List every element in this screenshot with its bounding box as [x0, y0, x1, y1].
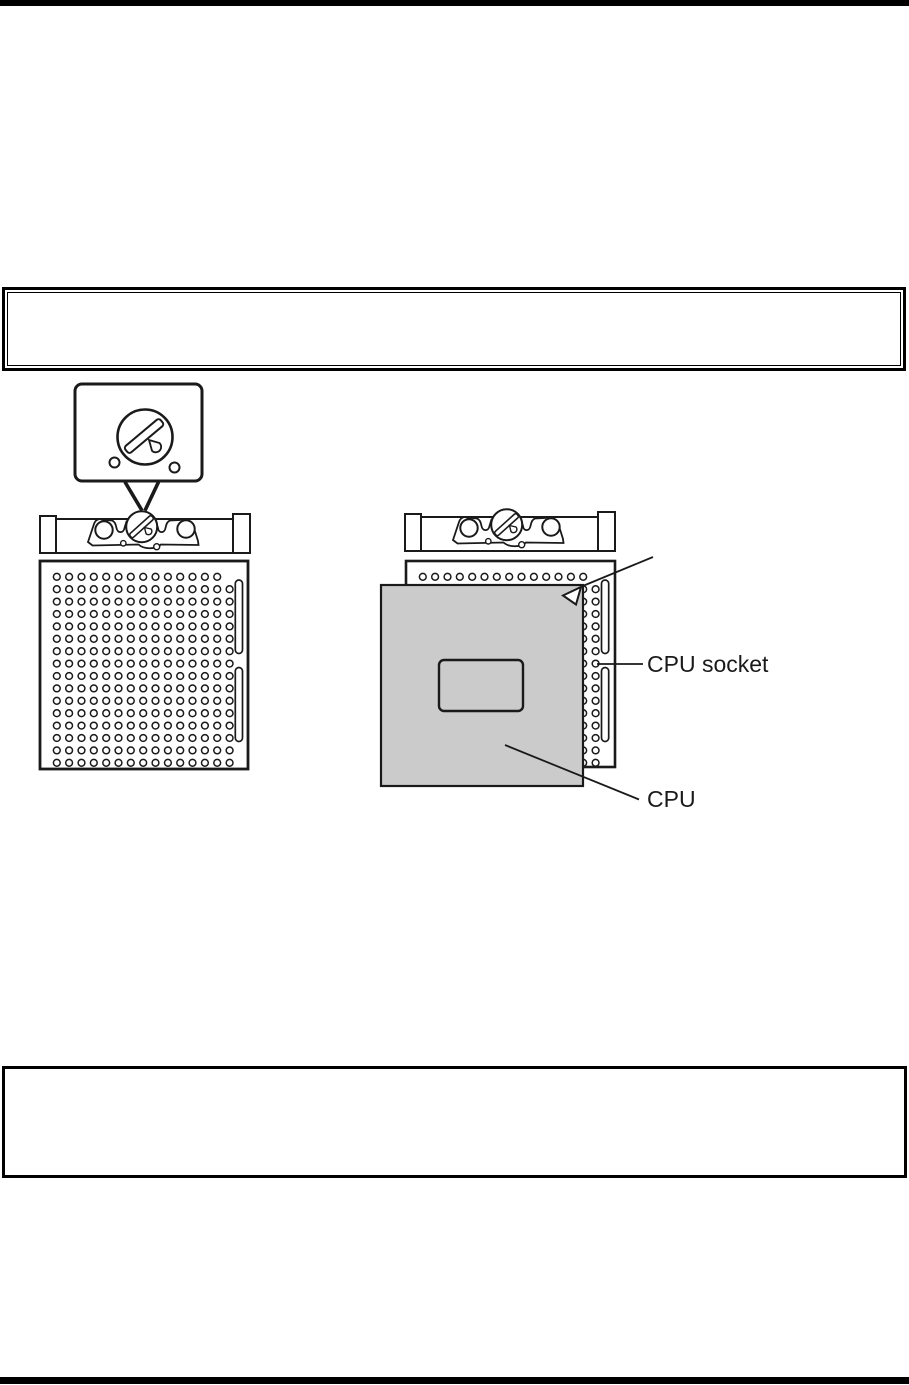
callout-hole-left: [110, 458, 120, 468]
callout-pointer: [125, 482, 159, 511]
cpu-socket-figure: [0, 0, 909, 880]
cpu-package: [381, 585, 583, 786]
cpu-installed-diagram: [381, 509, 615, 786]
manual-page: CPU socket CPU: [0, 0, 909, 1385]
callout-hole-right: [170, 463, 180, 473]
page-bottom-rule: [0, 1377, 909, 1384]
cam-lock-bar-left: [40, 511, 250, 553]
cam-lock-bar-right: [405, 509, 615, 551]
note-box-bottom: [2, 1066, 907, 1178]
cpu-socket-label: CPU socket: [647, 653, 768, 676]
cpu-label: CPU: [647, 788, 696, 811]
cam-lock-callout: [75, 384, 202, 511]
cpu-socket-empty-diagram: [40, 511, 250, 769]
